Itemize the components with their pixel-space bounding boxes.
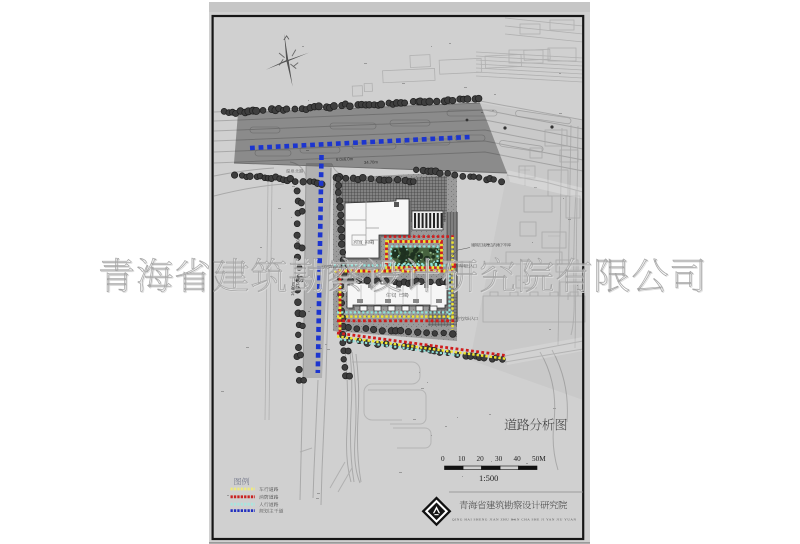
svg-text:1:500: 1:500 (479, 473, 498, 483)
svg-text:16.00m: 16.00m (290, 281, 296, 296)
svg-text:0: 0 (441, 455, 445, 463)
svg-text:10: 10 (458, 455, 466, 463)
svg-text:30: 30 (495, 455, 503, 463)
svg-text:6.0x6.0m: 6.0x6.0m (336, 156, 354, 162)
svg-text:QING HAI SHENG JIAN ZHU KAN CH: QING HAI SHENG JIAN ZHU KAN CHA SHE JI Y… (452, 518, 576, 522)
svg-text:34.70m: 34.70m (364, 159, 379, 165)
svg-text:11.00m: 11.00m (295, 274, 301, 288)
svg-text:50M: 50M (532, 455, 546, 463)
svg-text:20: 20 (477, 455, 485, 463)
svg-text:30.50m: 30.50m (295, 235, 301, 250)
svg-text:40: 40 (514, 455, 522, 463)
